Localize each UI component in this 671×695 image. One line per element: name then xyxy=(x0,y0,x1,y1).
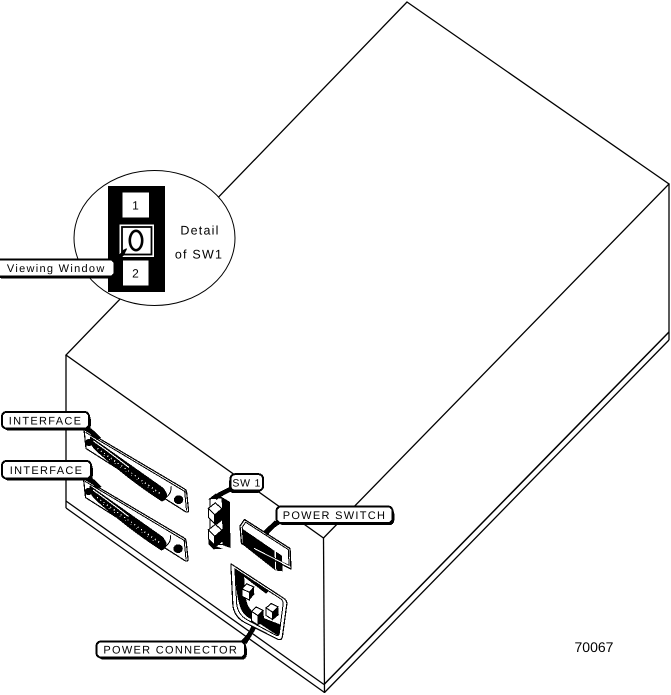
svg-text:Detail: Detail xyxy=(180,224,219,238)
svg-text:70067: 70067 xyxy=(575,639,614,655)
svg-text:of SW1: of SW1 xyxy=(175,248,223,262)
svg-text:Viewing Window: Viewing Window xyxy=(7,263,106,275)
svg-text:SW 1: SW 1 xyxy=(232,477,261,489)
svg-text:1: 1 xyxy=(132,199,139,213)
svg-text:2: 2 xyxy=(132,267,139,281)
svg-text:POWER SWITCH: POWER SWITCH xyxy=(283,510,387,522)
svg-text:POWER CONNECTOR: POWER CONNECTOR xyxy=(103,645,238,657)
svg-text:INTERFACE: INTERFACE xyxy=(10,465,83,477)
svg-text:INTERFACE: INTERFACE xyxy=(9,415,82,427)
